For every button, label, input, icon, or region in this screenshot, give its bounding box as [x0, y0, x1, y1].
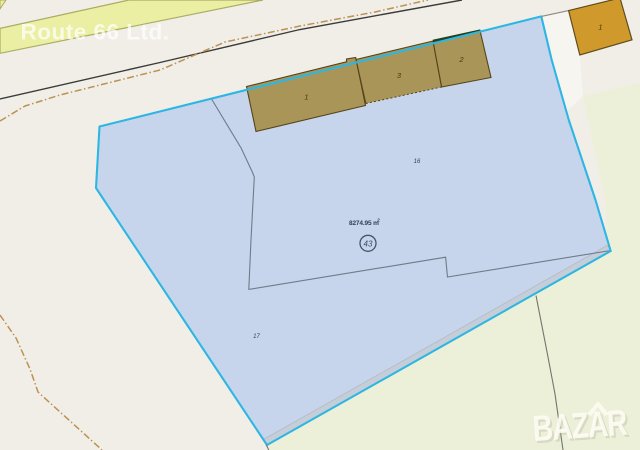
svg-text:1: 1 [598, 23, 602, 32]
svg-text:16: 16 [414, 159, 421, 165]
svg-text:2: 2 [377, 217, 380, 222]
svg-text:17: 17 [253, 334, 260, 340]
svg-text:BAZAR: BAZAR [531, 402, 628, 449]
svg-text:Route 66 Ltd.: Route 66 Ltd. [21, 20, 170, 45]
svg-text:43: 43 [364, 240, 373, 249]
svg-text:1: 1 [304, 93, 308, 102]
svg-text:2: 2 [458, 55, 464, 64]
svg-text:8274.95 m: 8274.95 m [349, 220, 379, 227]
